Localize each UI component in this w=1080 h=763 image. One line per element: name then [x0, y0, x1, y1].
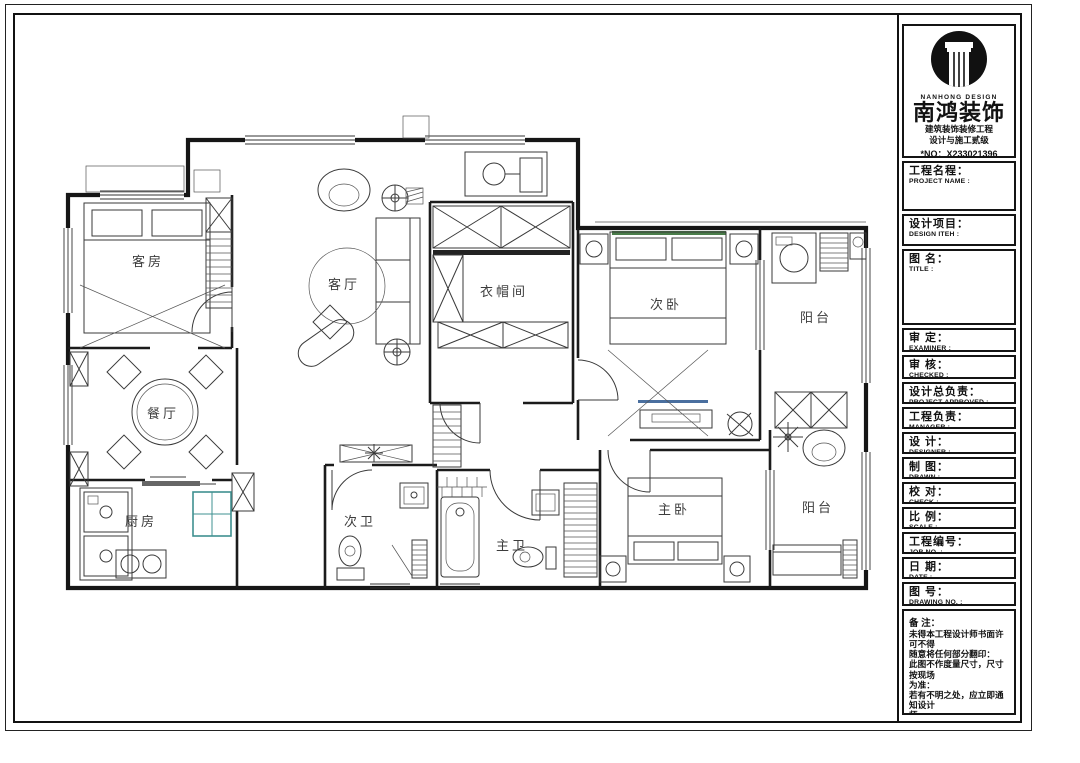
- note-line: 若有不明之处，应立即通知设计: [909, 690, 1009, 710]
- field-label-en: DRAWING NO. :: [909, 599, 1009, 606]
- cloakroom-wardrobes: [433, 206, 570, 348]
- master-bedroom-furniture: [600, 478, 750, 582]
- field-drawn: 制 图： DRAWN :: [902, 457, 1016, 479]
- field-label-en: DRAWN :: [909, 474, 1009, 479]
- field-label-cn: 审 核：: [909, 359, 1009, 372]
- note-line: 随意将任何部分翻印：: [909, 649, 1009, 659]
- field-label-cn: 比 例：: [909, 511, 1009, 524]
- company-logo-box: NANHONG DESIGN 南鸿装饰 建筑装饰装修工程 设计与施工贰级 *NO…: [902, 24, 1016, 158]
- notes-title: 备 注：: [909, 615, 1009, 629]
- cert-line-2: 设计与施工贰级: [909, 135, 1009, 146]
- field-drawing-no: 图 号： DRAWING NO. :: [902, 582, 1016, 606]
- field-scale: 比 例： SCALE :: [902, 507, 1016, 529]
- field-label-cn: 制 图：: [909, 461, 1009, 474]
- field-design-item: 设计项目： DESIGN ITEH :: [902, 214, 1016, 246]
- master-bathroom-fixtures: [437, 477, 597, 577]
- field-designer: 设 计： DESIGNER :: [902, 432, 1016, 454]
- toilet-icon: [337, 536, 364, 580]
- washbasin-icon: [400, 483, 428, 508]
- room-label-second-bedroom: 次卧: [650, 297, 682, 312]
- washbasin-icon: [532, 490, 559, 515]
- kitchen-furniture: [80, 481, 231, 580]
- field-label-cn: 设 计：: [909, 436, 1009, 449]
- room-label-master-bedroom: 主卧: [658, 502, 690, 517]
- field-label-cn: 校 对：: [909, 486, 1009, 499]
- title-block: NANHONG DESIGN 南鸿装饰 建筑装饰装修工程 设计与施工贰级 *NO…: [902, 24, 1016, 718]
- ceiling-fan-icon: [727, 412, 753, 436]
- notes-box: 备 注： 未得本工程设计师书面许可不得 随意将任何部分翻印： 此图不作度量尺寸，…: [902, 609, 1016, 715]
- field-label-cn: 审 定：: [909, 332, 1009, 345]
- company-logo-icon: [930, 30, 988, 88]
- field-label-en: DESIGNER :: [909, 449, 1009, 454]
- field-label-en: TITLE :: [909, 266, 1009, 273]
- note-line: 未得本工程设计师书面许可不得: [909, 629, 1009, 649]
- exterior-walls: [68, 140, 866, 588]
- field-label-en: JOB NO. :: [909, 549, 1009, 554]
- field-examiner: 审 定： EXAMINER :: [902, 328, 1016, 352]
- field-label-en: MANAGER :: [909, 424, 1009, 429]
- field-label-en: EXAMINER :: [909, 345, 1009, 352]
- bathtub-icon: [441, 497, 479, 577]
- field-label-en: CHECK :: [909, 499, 1009, 504]
- star-symbol-icon: [365, 444, 383, 462]
- room-label-kitchen: 厨房: [125, 514, 157, 529]
- room-label-balcony-south: 阳台: [802, 500, 834, 515]
- field-label-en: SCALE :: [909, 524, 1009, 529]
- drawing-sheet: 客房 客厅 衣帽间 次卧 阳台 餐厅 厨房 次卫 主卫 主卧 阳台 NANHON…: [0, 0, 1080, 763]
- field-check: 校 对： CHECK :: [902, 482, 1016, 504]
- room-label-cloakroom: 衣帽间: [480, 284, 528, 299]
- dining-room-furniture: [70, 352, 254, 511]
- field-label-cn: 工程负责：: [909, 411, 1009, 424]
- room-label-dining: 餐厅: [147, 406, 179, 421]
- field-label-cn: 工程名程：: [909, 165, 1009, 178]
- field-label-en: DATE :: [909, 574, 1009, 579]
- cert-line-1: 建筑装饰装修工程: [909, 124, 1009, 135]
- field-project-approved: 设计总负责： PROJECT APPROVED :: [902, 382, 1016, 404]
- field-job-no: 工程编号： JOB NO. :: [902, 532, 1016, 554]
- ceiling-lamp-icon: [382, 185, 408, 211]
- field-label-cn: 图 号：: [909, 586, 1009, 599]
- room-label-balcony-north: 阳台: [800, 310, 832, 325]
- note-line: 师。: [909, 710, 1009, 715]
- room-label-guest: 客房: [132, 254, 164, 269]
- field-label-cn: 日 期：: [909, 561, 1009, 574]
- room-label-living: 客厅: [328, 277, 360, 292]
- field-label-cn: 图 名：: [909, 253, 1009, 266]
- field-label-en: CHECKED :: [909, 372, 1009, 379]
- field-title: 图 名： TITLE :: [902, 249, 1016, 325]
- interior-walls: [68, 195, 770, 588]
- field-label-cn: 工程编号：: [909, 536, 1009, 549]
- room-label-second-bathroom: 次卫: [344, 514, 376, 529]
- field-manager: 工程负责： MANAGER :: [902, 407, 1016, 429]
- field-date: 日 期： DATE :: [902, 557, 1016, 579]
- field-project-name: 工程名程： PROJECT NAME :: [902, 161, 1016, 211]
- plant-icon: [773, 422, 803, 452]
- balcony-north-items: [772, 233, 866, 428]
- field-label-cn: 设计总负责：: [909, 386, 1009, 399]
- cert-number: *NO：X233021396: [909, 147, 1009, 158]
- field-label-en: PROJECT NAME :: [909, 178, 1009, 185]
- room-label-master-bathroom: 主卫: [496, 538, 528, 553]
- note-line: 此图不作度量尺寸，尺寸按现场: [909, 659, 1009, 679]
- note-line: 为准：: [909, 680, 1009, 690]
- field-label-cn: 设计项目：: [909, 218, 1009, 231]
- second-bedroom-furniture: [580, 231, 758, 436]
- field-checked: 审 核： CHECKED :: [902, 355, 1016, 379]
- brand-name-cn: 南鸿装饰: [909, 101, 1009, 124]
- field-label-en: DESIGN ITEH :: [909, 231, 1009, 238]
- field-label-en: PROJECT APPROVED :: [909, 399, 1009, 404]
- ceiling-lamp-icon: [384, 339, 410, 365]
